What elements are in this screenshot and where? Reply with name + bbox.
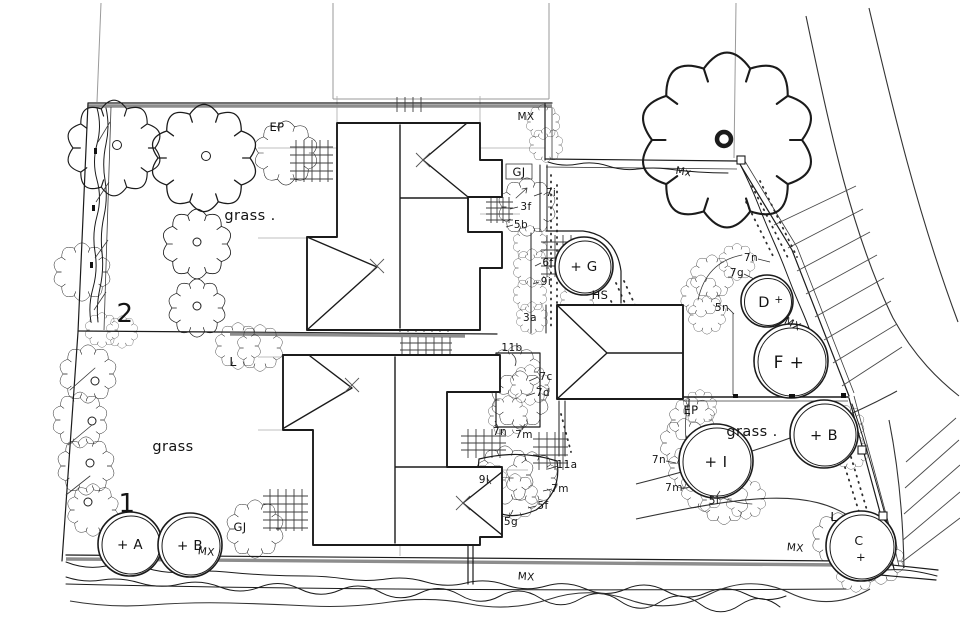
label-mx-bottom-right: MX (786, 541, 804, 555)
tree-circle-d-label: D (758, 295, 770, 311)
verge-hatch-bottom-right (902, 418, 960, 562)
tree-circle-f: F + (754, 324, 828, 398)
label-5i: 5i (709, 495, 719, 507)
label-3f: 3f (520, 201, 531, 213)
label-gj-bottom: GJ (233, 520, 246, 534)
tree-circle-d-plus: + (774, 294, 783, 306)
label-7d: 7d (536, 387, 550, 399)
site-plan-page: + A + B + G D + F + + B + I C (0, 0, 960, 619)
grass-label-right: grass . (726, 424, 777, 440)
shrub-ep-top (255, 121, 317, 185)
house-plot2-roof-plan (307, 123, 502, 330)
tree-circle-c-label: C (854, 533, 863, 548)
tree-circle-g: + G (555, 237, 613, 295)
fence-line (468, 546, 473, 584)
label-9l: 9l (479, 474, 489, 486)
label-7n-i: 7n (652, 454, 666, 466)
left-boundary (62, 103, 88, 561)
label-ep-right: EP (683, 403, 698, 417)
label-hs: HS (592, 288, 609, 302)
label-5g: 5g (504, 516, 518, 528)
grass-label-plot1: grass (152, 439, 193, 455)
tree-circle-b2-label: + B (810, 428, 838, 444)
label-mx-bottom-left: MX (197, 545, 215, 559)
tree-circle-g-label: + G (570, 259, 597, 275)
label-3a: 3a (523, 312, 537, 324)
large-tree-canopy (643, 53, 811, 228)
label-7n-d: 7n (744, 252, 758, 264)
label-11b: 11b (501, 342, 522, 354)
label-5n: 5n (715, 302, 729, 314)
label-gj-top: GJ (512, 165, 525, 179)
label-mx-bottom-mid: MX (517, 570, 535, 583)
tree-canopy (152, 104, 255, 211)
label-11a: 11a (557, 459, 578, 471)
label-ep-top: EP (269, 120, 284, 134)
label-7m-mid: 7m (515, 429, 533, 441)
left-hedge-plot2 (54, 108, 110, 322)
boundary-band-top (526, 104, 737, 173)
label-7c: 7c (539, 371, 552, 383)
tree-canopy (163, 209, 230, 279)
garage-roof-plan (557, 305, 683, 399)
tree-circle-a-label: + A (117, 537, 143, 553)
plot-2-number: 2 (117, 299, 134, 329)
grass-label-plot2: grass . (224, 208, 275, 224)
driveway-curves (636, 391, 897, 521)
tree-circle-b1: + B (158, 513, 222, 577)
tree-canopy (169, 279, 225, 337)
tree-circle-f-label: F + (774, 353, 805, 373)
tree-circle-i-label: + I (705, 453, 728, 471)
plot-1-number: 1 (119, 489, 136, 519)
label-mx-top: MX (517, 111, 534, 123)
label-7i: 7i (546, 187, 556, 199)
site-plan-drawing: + A + B + G D + F + + B + I C (0, 0, 960, 619)
tree-circle-a: + A (98, 512, 162, 576)
label-7m-low: 7m (551, 483, 569, 495)
shrub-l-left (216, 323, 283, 372)
label-5b: 5b (514, 219, 528, 231)
label-l-right: L (830, 509, 837, 524)
label-7n-mid: 7n (493, 426, 507, 438)
label-5f: 5f (537, 500, 548, 512)
label-7g: 7g (730, 267, 744, 279)
label-l-left: L (229, 354, 236, 369)
road-curves-right (806, 8, 959, 568)
label-7m-i: 7m (665, 482, 683, 494)
tree-circle-b2: + B (790, 400, 858, 468)
tree-circle-c-plus: + (856, 550, 866, 564)
left-hedge-plot1 (53, 345, 118, 536)
label-6f: 6f (542, 257, 553, 269)
label-9i: 9i (541, 276, 551, 288)
